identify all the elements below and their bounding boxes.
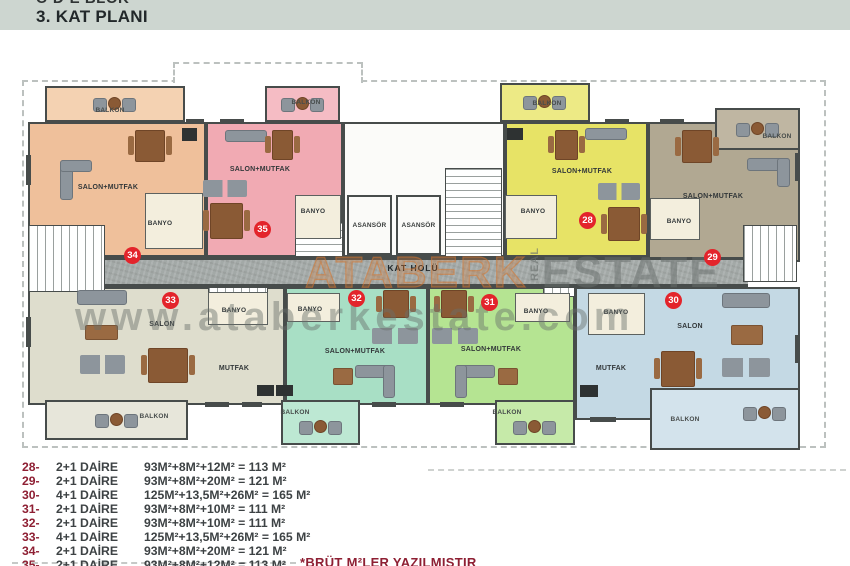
armchairs-icon [598,183,640,200]
apartment-30-badge: 30 [665,292,682,309]
legend-type: 4+1 DAİRE [56,531,144,545]
page: C-D-E BLOK 3. KAT PLANI ASANSÖR ASANSÖR [0,0,850,566]
legend-type: 2+1 DAİRE [56,461,144,475]
legend-row-30: 30-4+1 DAİRE125M²+13,5M²+26M² = 165 M² [22,489,310,503]
dining-table-icon [555,130,578,160]
window-marker [795,153,800,181]
legend-type: 2+1 DAİRE [56,545,144,559]
appliance-icon [276,385,293,396]
legend-type: 2+1 DAİRE [56,503,144,517]
apartment-29-badge: 29 [704,249,721,266]
window-marker [242,402,262,407]
apartment-33-balkon-label: BALKON [124,413,184,420]
window-marker [205,402,229,407]
legend-row-33: 33-4+1 DAİRE125M²+13,5M²+26M² = 165 M² [22,531,310,545]
window-marker [186,119,204,124]
legend-number: 33- [22,531,56,545]
legend-formula: 93M²+8M²+12M² = 113 M² [144,461,286,475]
apartment-30-mutfak-label: MUTFAK [551,365,671,372]
apartment-34-badge: 34 [124,247,141,264]
apartment-34-balkon-label: BALKON [80,107,140,114]
apartment-31-salon-mutfak-label: SALON+MUTFAK [431,346,551,353]
legend-type: 2+1 DAİRE [56,559,144,566]
apartment-34-salon-mutfak-label: SALON+MUTFAK [48,184,168,191]
window-marker [660,119,684,124]
window-marker [220,119,244,124]
legend-number: 35- [22,559,56,566]
legend-number: 30- [22,489,56,503]
elevator-2-label: ASANSÖR [402,222,436,229]
apartment-28-balkon-label: BALKON [517,100,577,107]
window-marker [372,402,396,407]
watermark-brand-estate: ESTATE [542,248,721,297]
sofa-icon [585,128,627,140]
sofa-icon [455,365,467,398]
legend-number: 29- [22,475,56,489]
legend-row-35: 35-2+1 DAİRE93M²+8M²+12M² = 113 M² [22,559,310,566]
armchairs-icon [80,355,125,374]
legend-formula: 93M²+8M²+20M² = 121 M² [144,545,287,559]
legend-number: 34- [22,545,56,559]
sofa-icon [225,130,267,142]
apartment-29-balkon-label: BALKON [747,133,807,140]
apartment-28-banyo-label: BANYO [504,208,562,215]
sofa-icon [60,160,92,172]
apartment-35-banyo-label: BANYO [284,208,342,215]
appliance-icon [580,385,598,397]
apartment-35-banyo-room [295,195,341,239]
apartment-31-badge: 31 [481,294,498,311]
legend-formula: 125M²+13,5M²+26M² = 165 M² [144,531,310,545]
apartment-33-mutfak-label: MUTFAK [174,365,294,372]
balcony-table-icon [314,420,327,433]
stairwell-core [445,168,502,257]
legend-formula: 93M²+8M²+10M² = 111 M² [144,503,285,517]
legend-formula: 93M²+8M²+12M² = 113 M² [144,559,286,566]
legend-row-34: 34-2+1 DAİRE93M²+8M²+20M² = 121 M² [22,545,310,559]
apartment-32-balkon-label: BALKON [265,409,325,416]
stairwell-right [743,225,797,282]
legend-number: 31- [22,503,56,517]
apartment-34-banyo-label: BANYO [131,220,189,227]
window-marker [795,335,800,363]
apartment-30-balkon-label: BALKON [655,416,715,423]
sofa-icon [383,365,395,398]
apartment-32-badge: 32 [348,290,365,307]
watermark-brand-real: REAL [529,267,541,281]
elevator-1: ASANSÖR [347,195,392,255]
stairwell-left [28,225,105,292]
window-marker [440,402,464,407]
appliance-icon [257,385,274,396]
apartment-29-salon-mutfak-label: SALON+MUTFAK [653,193,773,200]
dining-table-icon [682,130,712,163]
apartment-32-salon-mutfak-label: SALON+MUTFAK [295,348,415,355]
floor-plan: ASANSÖR ASANSÖR KAT HOLÜ SALON+MUTFAK SA… [20,55,832,457]
watermark-brand: ATABERKREALESTATE [305,248,721,298]
elevator-2: ASANSÖR [396,195,441,255]
apartment-31-balkon-label: BALKON [477,409,537,416]
legend-type: 4+1 DAİRE [56,489,144,503]
block-title: C-D-E BLOK [36,0,129,7]
apartment-35-badge: 35 [254,221,271,238]
legend-type: 2+1 DAİRE [56,517,144,531]
appliance-icon [507,128,523,140]
appliance-icon [182,128,197,141]
apartment-28-salon-mutfak-label: SALON+MUTFAK [522,168,642,175]
coffee-table-icon [333,368,353,385]
apartment-29-banyo-label: BANYO [650,218,708,225]
apartment-28-badge: 28 [579,212,596,229]
elevator-1-label: ASANSÖR [353,222,387,229]
floor-plan-title: 3. KAT PLANI [36,7,148,27]
dashed-divider-right [428,469,846,471]
apartment-30-salon-label: SALON [630,323,750,330]
dining-table-icon [210,203,243,239]
legend-number: 32- [22,517,56,531]
legend-formula: 125M²+13,5M²+26M² = 165 M² [144,489,310,503]
armchairs-icon [722,358,770,377]
apartment-35-salon-mutfak-label: SALON+MUTFAK [200,166,320,173]
window-marker [590,417,616,422]
balcony-table-icon [758,406,771,419]
legend-number: 28- [22,461,56,475]
balcony-table-icon [110,413,123,426]
dining-table-icon [135,130,165,162]
apartment-33-badge: 33 [162,292,179,309]
sofa-icon [722,293,770,308]
watermark-brand-ataberk: ATABERK [305,248,528,297]
coffee-table-icon [498,368,518,385]
legend-footnote: *BRÜT M²LER YAZILMIŞTIR [300,555,477,566]
legend-row-31: 31-2+1 DAİRE93M²+8M²+10M² = 111 M² [22,503,310,517]
sofa-icon [777,158,790,187]
legend-row-32: 32-2+1 DAİRE93M²+8M²+10M² = 111 M² [22,517,310,531]
legend-type: 2+1 DAİRE [56,475,144,489]
roof-outline-notch [173,62,363,83]
legend: 28-2+1 DAİRE93M²+8M²+12M² = 113 M² 29-2+… [22,461,310,566]
legend-row-29: 29-2+1 DAİRE93M²+8M²+20M² = 121 M² [22,475,310,489]
dining-table-icon [272,130,293,160]
armchairs-icon [203,180,247,197]
title-bar: C-D-E BLOK 3. KAT PLANI [0,0,850,30]
dining-table-icon [608,207,640,241]
legend-formula: 93M²+8M²+20M² = 121 M² [144,475,287,489]
legend-row-28: 28-2+1 DAİRE93M²+8M²+12M² = 113 M² [22,461,310,475]
apartment-28-banyo-room [505,195,557,239]
window-marker [26,155,31,185]
apartment-35-balkon-label: BALKON [276,99,336,106]
window-marker [26,317,31,347]
legend-formula: 93M²+8M²+10M² = 111 M² [144,517,285,531]
window-marker [605,119,629,124]
balcony-table-icon [528,420,541,433]
